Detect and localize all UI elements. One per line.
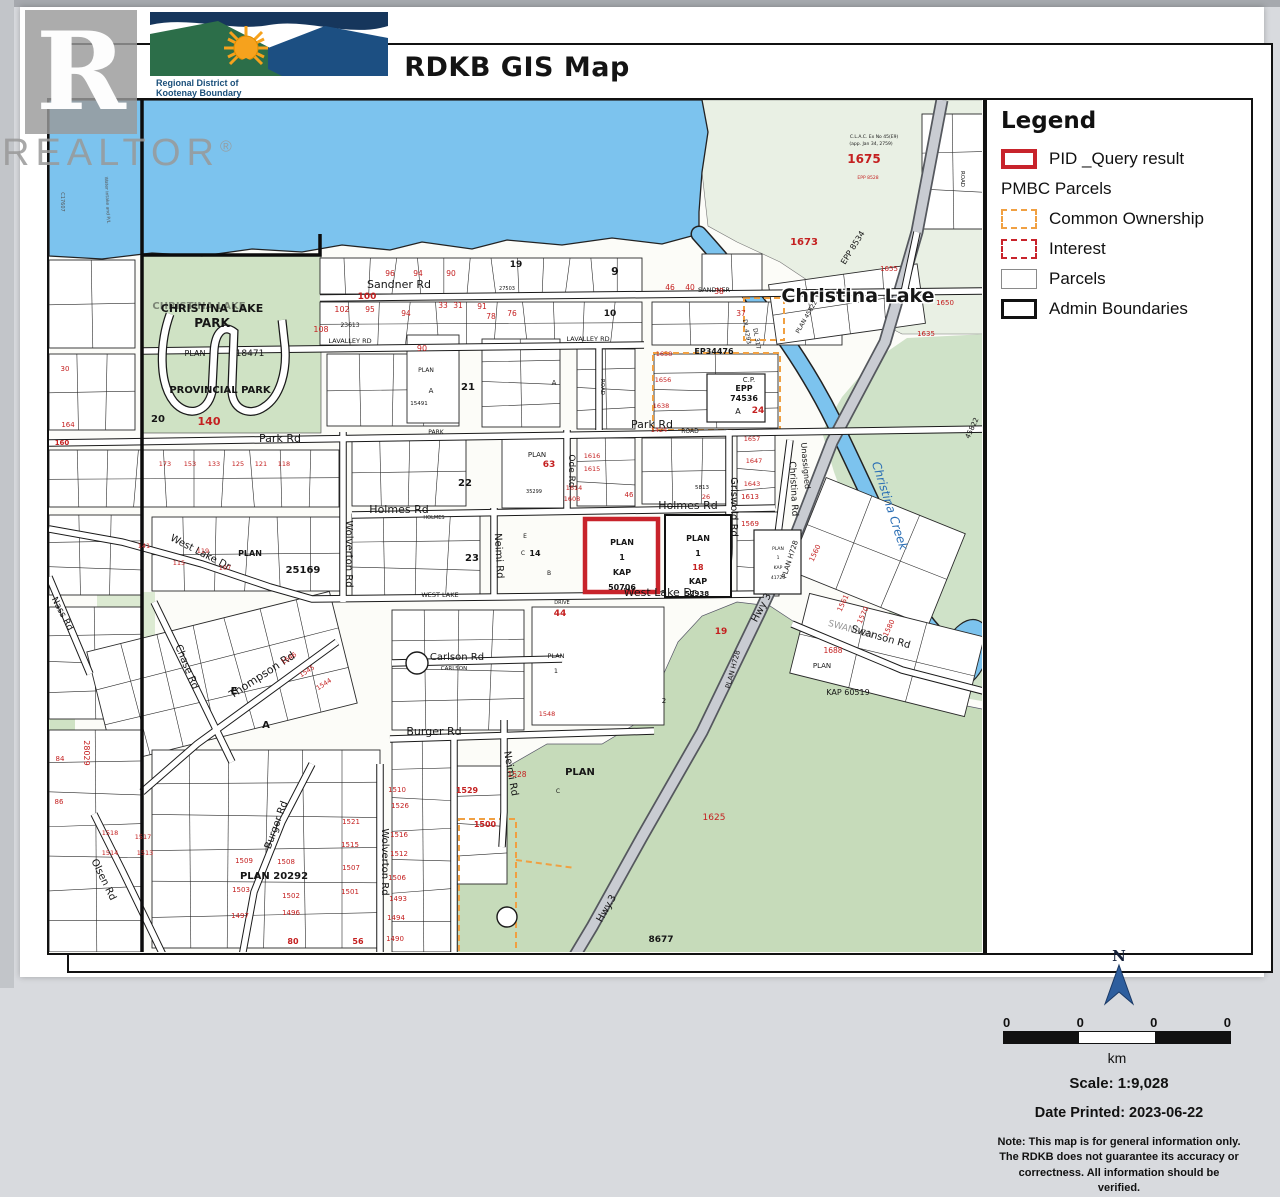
map-label: 1657 [744,435,761,443]
map-label: Carlson Rd [430,652,484,663]
map-label: 15491 [410,401,428,407]
map-label: 78 [486,312,496,321]
realtor-r-glyph: R [36,18,126,126]
legend-group-pmbc-parcels: PMBC Parcels [1001,174,1204,204]
map-label: DRIVE [554,600,569,606]
map-label: 1608 [564,495,581,503]
map-label: 1656 [655,376,672,384]
map-label: A [552,379,557,387]
map-label: 1497 [231,912,249,920]
map-label: 118 [278,460,290,468]
map-label: CHRISTINA LAKE [152,301,245,312]
map-label: ROAD [599,379,605,395]
map-label: 1514 [102,849,119,857]
map-label: 19 [715,627,728,637]
north-arrow: N [987,947,1251,1014]
map-label: 1529 [456,786,479,795]
rdkb-logo-graphic [150,12,388,76]
map-label: PLAN [772,546,784,552]
map-label: WEST LAKE [421,591,458,599]
map-canvas: Sandner RdSANDNER27503LAVALLEY RDLAVALLE… [47,98,985,955]
common-swatch [1001,209,1037,229]
map-label: 5813 [695,485,709,491]
map-label: E [523,533,527,540]
map-label: 52938 [685,590,709,598]
map-label: C17607 [59,192,65,211]
map-label: (app. Jan 34, 2759) [849,141,892,147]
map-label: 1548 [539,710,556,718]
window-edge-top [0,0,1280,7]
map-label: 153 [184,460,196,468]
map-label: 1688 [823,646,842,655]
map-label: 38 [714,287,724,296]
map-label: 22 [458,478,472,489]
map-label: 96 [385,269,395,278]
map-label: 1638 [653,402,670,410]
pid-query-swatch [1001,149,1037,169]
map-label: CARLSON [441,666,467,672]
map-label: 140 [198,415,221,428]
map-label: 1510 [388,786,406,794]
map-label: 115 [173,559,185,567]
map-label: 1502 [282,892,300,900]
date-printed: Date Printed: 2023-06-22 [987,1105,1251,1121]
map-label: KAP [689,577,707,586]
map-label: 1490 [386,935,404,943]
map-label: PLAN [813,662,831,670]
map-label: 1496 [282,909,300,917]
map-label: 1614 [566,484,583,492]
logo-text-line2: Kootenay Boundary [156,88,242,98]
map-label: 31 [453,301,463,310]
map-label: 1512 [390,850,408,858]
map-label: 1515 [341,841,359,849]
map-label: 95 [365,305,375,314]
north-label: N [1112,947,1126,965]
map-label: KAP [774,565,783,571]
legend-item-parcels: Parcels [1001,264,1204,294]
map-label: Holmes Rd [369,503,428,516]
map-label: Burger Rd [406,725,461,738]
map-label: PARK [428,429,445,436]
map-label: 35299 [526,489,542,495]
map-label: 125 [232,460,244,468]
map-label: B [547,570,551,577]
map-label: 1493 [389,895,407,903]
scale-tick: 0 [1224,1015,1231,1030]
map-label: 23613 [340,322,359,329]
map-label: 24 [752,406,765,416]
map-label: 173 [159,460,171,468]
map-label: 1513 [137,849,154,857]
map-label: 1647 [746,457,763,465]
legend: Legend PID _Query result PMBC Parcels Co… [1001,108,1204,324]
map-label: 18471 [236,349,265,359]
screen: RDKB GIS Map Regional District of Kooten… [0,0,1280,988]
map-label: Sandner Rd [367,278,431,291]
map-label: 119 [197,547,209,555]
map-label: 28029 [82,740,91,765]
map-label: 1650 [936,299,954,307]
map-label: 1503 [232,886,250,894]
map-label: PLAN [548,652,565,660]
map-label: A [262,720,270,731]
map-label: 10 [604,309,617,319]
map-label: 90 [446,269,456,278]
map-label: PLAN [686,534,710,543]
scale-bar: 0000 km [1003,1015,1231,1066]
map-label: 74536 [730,394,758,403]
map-label: 91 [477,302,487,311]
map-label: 141 [138,542,150,550]
map-label: ROAD [681,428,699,435]
map-label: 40 [685,283,695,292]
map-label: 160 [55,439,70,447]
realtor-watermark-logo: R [25,10,137,134]
map-label: PLAN [185,349,206,358]
scale-unit: km [1003,1050,1231,1066]
map-label: PLAN [565,767,595,778]
map-label: 1424 [651,426,668,434]
map-label: PLAN [238,549,262,558]
map-label: 133 [208,460,220,468]
map-label: 46 [625,491,634,499]
map-label: 56 [352,937,364,946]
map-label: E [231,686,238,697]
map-label: 108 [313,325,328,334]
map-label: 102 [334,305,349,314]
map-label: 1494 [387,914,405,922]
map-label: 1509 [235,857,253,865]
map-label: 1518 [102,829,119,837]
map-label: 33 [438,301,448,310]
legend-item-common-ownership: Common Ownership [1001,204,1204,234]
map-label: 19 [510,260,523,270]
map-label: Wolverton Rd [379,828,390,895]
rdkb-logo: Regional District of Kootenay Boundary [150,12,388,100]
map-label: 50706 [608,583,636,592]
map-label: 1508 [277,858,295,866]
realtor-watermark-text: REALTOR® [2,132,238,175]
map-label: 1521 [342,818,360,826]
map-label: 1 [777,555,780,561]
map-label: 86 [55,798,64,806]
legend-item-admin-boundaries: Admin Boundaries [1001,294,1204,324]
map-label: 30 [61,365,70,373]
map-label: ROAD [959,171,965,187]
map-label: C [556,788,560,795]
map-label: 37 [736,309,746,318]
admin-swatch [1001,299,1037,319]
map-label: 1500 [474,820,497,829]
map-label: 164 [61,421,75,429]
map-label: 107 [219,564,231,572]
map-label: A [735,407,741,416]
map-label: 1615 [584,465,601,473]
map-label: 1506 [388,874,406,882]
map-label: 18 [692,563,704,572]
interest-swatch [1001,239,1037,259]
map-label: Park Rd [259,432,301,445]
map-label: PLAN [418,367,434,374]
map-label: 100 [358,292,377,302]
legend-panel: Legend PID _Query result PMBC Parcels Co… [985,98,1253,955]
disclaimer-note: Note: This map is for general informatio… [997,1135,1241,1197]
map-label: LAVALLEY RD [566,335,609,343]
map-label: 14 [529,549,541,558]
map-label: KAP 60519 [826,688,869,697]
map-label: 1516 [390,831,408,839]
logo-text-line1: Regional District of [156,78,242,88]
map-label: C.P. [743,376,755,384]
map-label: 20 [151,414,165,425]
map-label: 1 [554,667,558,675]
map-label: Wolverton Rd [343,520,354,587]
map-label: 9 [611,265,619,278]
map-label: 1613 [741,493,759,501]
map-label: 25169 [286,565,321,576]
map-label: Christina Lake [781,285,934,307]
map-label: Griswold Rd [728,477,739,537]
map-label: 76 [507,309,517,318]
map-label: 1507 [342,864,360,872]
map-label: 121 [255,460,267,468]
map-label: 1501 [341,888,359,896]
map-label: LAVALLEY RD [328,337,371,345]
map-label: 1658 [656,350,673,358]
map-label: HOLMES [423,515,444,521]
map-label: C.L.A.C. Ex No 45(E9) [850,134,899,140]
map-label: 1616 [584,452,601,460]
map-label: PLAN [610,538,634,547]
map-label: 1 [695,549,701,558]
map-label: 27503 [499,286,515,292]
legend-item-interest: Interest [1001,234,1204,264]
map-label: 1517 [135,833,152,841]
map-label: 63 [543,460,556,470]
map-label: 23 [465,553,479,564]
map-label: 1643 [744,480,761,488]
map-label: 1655 [880,265,898,273]
map-label: Ode Rd [566,454,576,487]
map-label: 1675 [847,152,880,166]
map-label: PLAN [528,451,546,459]
map-label: 80 [287,937,299,946]
scale-tick: 0 [1150,1015,1157,1030]
map-label: 90 [417,344,427,353]
map-label: 1 [619,553,625,562]
scale-tick: 0 [1003,1015,1010,1030]
map-label: 1673 [790,237,818,248]
map-label: 2 [662,697,666,705]
map-label: 21 [461,382,475,393]
map-label: 1625 [703,813,726,823]
map-label: C [521,550,525,557]
gis-map-image: Sandner RdSANDNER27503LAVALLEY RDLAVALLE… [49,100,982,952]
map-label: 1526 [391,802,409,810]
map-label: 1528 [507,770,526,779]
scale-text: Scale: 1:9,028 [987,1075,1251,1092]
map-label: PROVINCIAL PARK [169,385,272,396]
map-label: KAP [613,568,631,577]
map-label: A [429,387,434,395]
map-label: 84 [56,755,65,763]
map-label: EP34476 [694,347,734,356]
map-label: PARK [194,316,230,330]
map-label: 1635 [917,330,935,338]
map-label: 1569 [741,520,759,528]
map-label: 94 [413,269,423,278]
map-label: 26 [702,493,710,501]
map-label: EPP [735,384,752,393]
map-label: 44 [554,609,567,619]
legend-title: Legend [1001,108,1204,134]
legend-item-pid-query-result: PID _Query result [1001,144,1204,174]
map-label: EPP 8528 [857,175,878,181]
parcels-swatch [1001,269,1037,289]
map-label: PLAN 20292 [240,871,308,882]
map-label: 41726 [771,575,785,581]
map-label: 8677 [648,935,673,945]
map-label: 46 [665,283,675,292]
map-label: 94 [401,309,411,318]
scale-tick: 0 [1077,1015,1084,1030]
